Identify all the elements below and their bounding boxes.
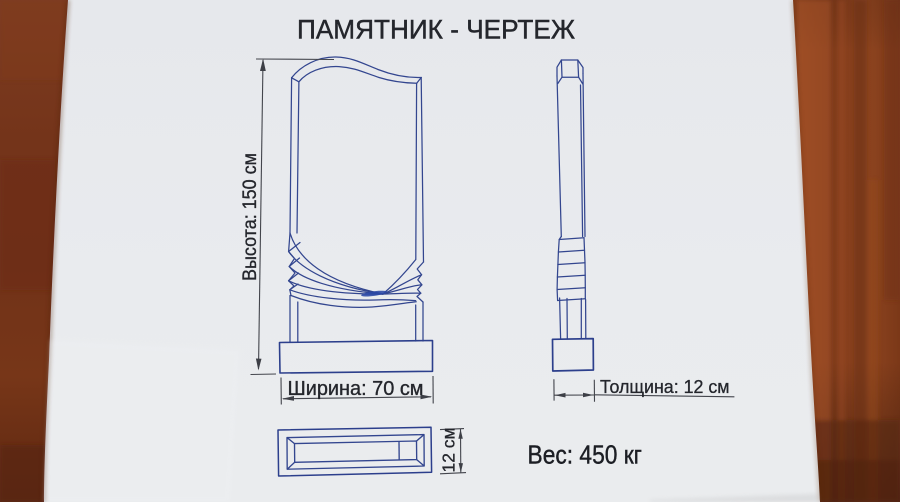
svg-text:ПАМЯТНИК - ЧЕРТЕЖ: ПАМЯТНИК - ЧЕРТЕЖ	[297, 15, 575, 45]
svg-text:Высота: 150 см: Высота: 150 см	[239, 153, 261, 281]
svg-text:12 см: 12 см	[439, 428, 459, 473]
svg-text:Толщина: 12 см: Толщина: 12 см	[600, 376, 730, 397]
svg-text:Ширина: 70 см: Ширина: 70 см	[288, 378, 424, 400]
svg-text:Вес: 450 кг: Вес: 450 кг	[528, 440, 643, 470]
